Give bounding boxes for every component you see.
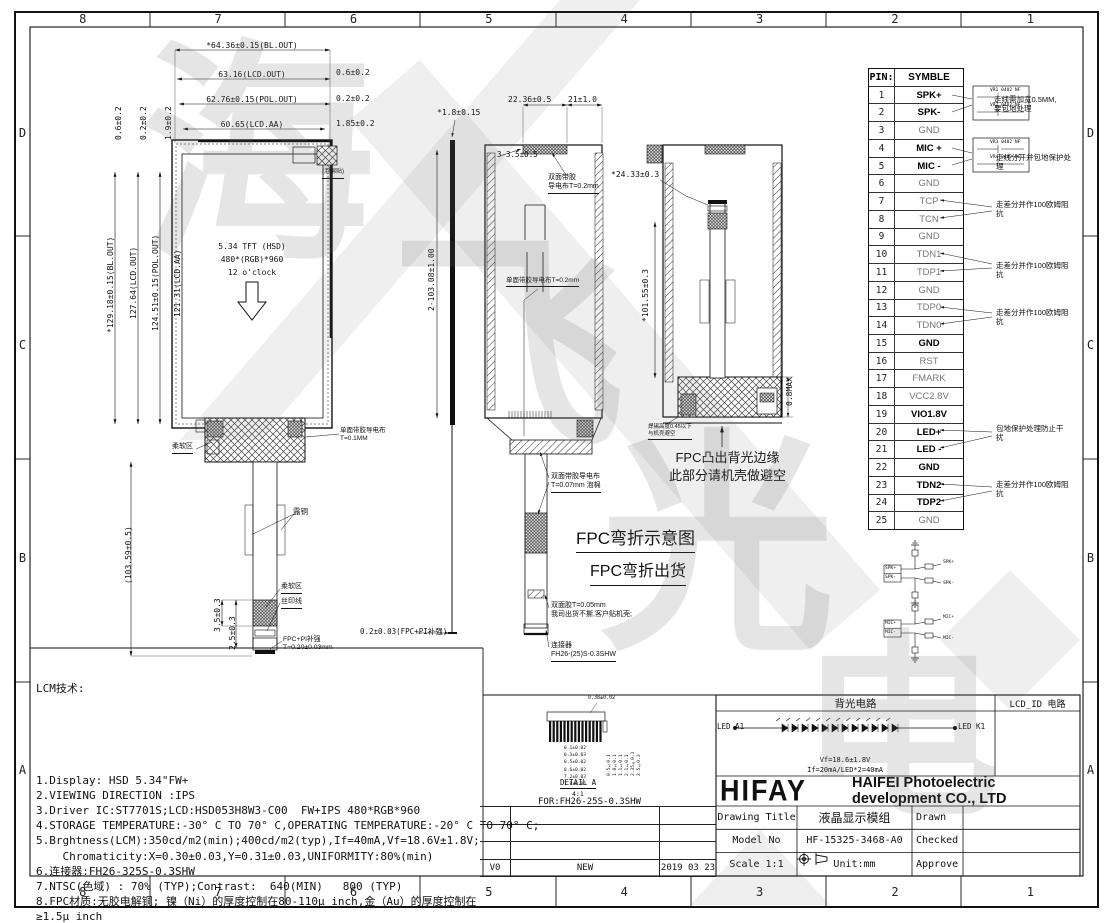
pin-symbol: TDN2 [895,477,963,494]
pin-symbol: GND [895,459,963,476]
pin-row: 19VIO1.8V [869,405,963,423]
vr3-label: VR3 0402 NF [990,140,1020,145]
mic-in2-label: MIC- [885,630,896,635]
hifay-logo: HIFAY [720,774,807,807]
pin-number: 8 [869,211,895,228]
pin-symbol: MIC - [895,158,963,175]
company-name-cell: HAIFEI Photoelectric development CO., LT… [852,776,1080,806]
pin-table-header: PIN: SYMBLE [869,69,963,86]
detail-for-text: FOR:FH26-25S-0.3SHW [538,797,641,808]
pin-symbol: TDN0 [895,317,963,334]
zone-letter: B [15,452,30,664]
dim-offset-v2: 0.2±0.2 [139,106,149,140]
model-no-label: Model No [716,829,797,852]
panel-spec-line3: 12 o'clock [172,268,332,278]
pin-row: 6GND [869,174,963,192]
dim-2-5: 2.5±0.3 [228,616,238,650]
pin-row: 9GND [869,228,963,246]
dim-fpc-length: (103.59±0.5) [124,526,134,584]
pin-symbol: GND [895,335,963,352]
pin-row: 2SPK- [869,103,963,121]
pin-number: 14 [869,317,895,334]
detail-dim: 2.35±0.1 [631,720,636,776]
pin-annotation-7: 走差分并作100欧姆阻 抗 [996,480,1069,499]
model-no-value: HF-15325-3468-A0 [797,829,912,852]
pin-symbol: GND [895,512,963,529]
spk-out1-label: SPK+ [943,560,954,565]
spk-out2-label: SPK- [943,581,954,586]
pin-symbol: GND [895,175,963,192]
dim-pol-height: 124.51±0.15(POL.OUT) [151,235,161,331]
detail-dim: 0.3±0.03 [543,752,607,759]
pin-number: 24 [869,495,895,512]
zone-number: 8 [15,12,150,27]
pin-symbol: RST [895,353,963,370]
dim-v3-max: 0.8MAX [785,377,795,406]
pin-number: 4 [869,140,895,157]
pin-symbol: GND [895,282,963,299]
pin-symbol: TCN [895,211,963,228]
zone-number: 4 [557,885,692,899]
pin-row: 1SPK+ [869,86,963,104]
pin-number: 17 [869,370,895,387]
revision-desc [511,842,660,859]
led-cathode-label: LED K1 [958,722,985,731]
dim-aa-width: 60.65(LCD.AA) [172,120,332,130]
tape1-note: 单面带胶导电布T=0.2mm [506,277,579,287]
detail-dim: 2.1±0.1 [625,720,630,776]
pin-row: 24TDP2 [869,494,963,512]
pin-symbol: LED+ [895,424,963,441]
pin-row: 7TCP [869,192,963,210]
pin-number: 1 [869,87,895,104]
pin-symbol: VIO1.8V [895,406,963,423]
detail-dim: 1.1±0.1 [619,720,624,776]
pin-number: 15 [869,335,895,352]
dim-v3-width: *24.33±0.3 [611,170,659,180]
spk-in2-label: SPK- [885,575,896,580]
flex-zone-label-2: 柔软区 [281,583,302,594]
mic-out1-label: MIC+ [943,615,954,620]
revision-desc: NEW [511,860,660,877]
pin-row: 18VCC2.8V [869,387,963,405]
pin-symbol: TDP0 [895,300,963,317]
pin-row: 22GND [869,458,963,476]
revision-date: 2019 03 23 [660,860,716,877]
zone-number: 1 [963,885,1098,899]
pin-number: 18 [869,388,895,405]
vr4-label: VR4 0402 NF [990,155,1020,160]
adhesive-note: 双面胶T=0.05mm 我司出货不撕,客户贴机壳; [551,602,632,620]
vr2-label: VR2 0402 NF [990,103,1020,108]
note-line: Chromaticity:X=0.30±0.03,Y=0.31±0.03,UNI… [36,849,488,864]
detail-title: DETAIL A [560,778,596,789]
pin-row: 3GND [869,121,963,139]
dim-lcd-width: 63.16(LCD.OUT) [172,70,332,80]
pin-row: 5MIC - [869,157,963,175]
pin-symbol: LED - [895,441,963,458]
pin-annotation-3: 走差分并作100欧姆阻 抗 [996,200,1069,219]
dim-offset-v1: 0.6±0.2 [114,106,124,140]
pin-number: 11 [869,264,895,281]
dim-lcd-height: 127.64(LCD.OUT) [129,247,139,319]
drawing-title-value: 液晶显示模组 [797,806,912,829]
mic-in1-label: MIC+ [885,621,896,626]
dim-pol-width: 62.76±0.15(POL.OUT) [172,95,332,105]
pin-number: 13 [869,300,895,317]
revision-date [660,842,716,859]
pin-row: 8TCN [869,210,963,228]
zone-number: 3 [692,885,827,899]
pin-annotation-4: 走差分并作100欧姆阻 抗 [996,261,1069,280]
zone-letter: D [1083,27,1098,239]
pin-number: 21 [869,441,895,458]
pin-number: 22 [869,459,895,476]
detail-dim: 1.0±0.1 [613,720,618,776]
fpc-bend-title: FPC弯折示意图 [576,528,695,553]
drawing-sheet: 87654321 87654321 DCBA DCBA *64.36±0.15(… [0,0,1113,923]
zone-number: 2 [827,12,962,27]
note-line: 1.Display: HSD 5.34"FW+ [36,773,488,788]
approve-label: Approve [912,852,967,876]
zone-letter: C [1083,239,1098,451]
dim-v3-height: *101.55±0.3 [641,269,651,322]
pin-number: 12 [869,282,895,299]
pin-symbol: SPK+ [895,87,963,104]
solder-note: 焊锡高度0.45以下 与机壳避空 [648,424,692,440]
fpc-clearance-note-2: 此部分请机壳做避空 [655,468,800,484]
pin-number: 2 [869,104,895,121]
pin-row: 17FMARK [869,369,963,387]
pin-symbol: TDP2 [895,495,963,512]
projection-symbol-icon [797,852,831,866]
detail-top-dim: 0.38±0.02 [588,695,615,701]
company-name: HAIFEI Photoelectric development CO., LT… [852,775,1080,807]
zone-number: 4 [557,12,692,27]
detail-dim: 0.5±0.02 [543,759,607,766]
pin-annotation-6: 包地保护处理防止干 扰 [996,424,1064,443]
pin-symbol: GND [895,229,963,246]
pin-symbol: TCP [895,193,963,210]
drawing-title-label: Drawing Title [716,806,797,829]
pin-row: 25GND [869,511,963,529]
zone-letters-left: DCBA [15,27,30,876]
pin-row: 12GND [869,281,963,299]
dim-offset-3: 1.85±0.2 [336,119,375,129]
fpc-ship-title: FPC弯折出货 [590,562,686,586]
revision-row: V0 NEW 2019 03 23 [480,860,716,878]
notes-lines: 1.Display: HSD 5.34"FW+2.VIEWING DIRECTI… [36,727,488,923]
pin-row: 20LED+ [869,423,963,441]
zone-letter: A [1083,664,1098,876]
pin-number: 6 [869,175,895,192]
pin-number: 19 [869,406,895,423]
pin-symbol: TDN1 [895,246,963,263]
dim-v2-tab: 3-3.5±0.5 [497,150,538,159]
zone-letter: D [15,27,30,239]
silkscreen-label: 丝印线 [281,598,302,609]
detail-vertical-dims: 0.5±0.11.0±0.11.1±0.12.1±0.12.35±0.12.5±… [607,720,642,776]
checked-label: Checked [912,829,967,852]
zone-number: 5 [421,12,556,27]
pin-number: 25 [869,512,895,529]
unit-cell: Unit:mm [797,852,912,876]
dim-v2-w1: 22.36±0.5 [508,95,551,105]
revision-date [660,825,716,842]
note-line: ≥1.5μ inch [36,909,488,923]
pin-header: PIN: [869,69,895,86]
detail-dim: 0.5±0.1 [607,720,612,776]
notes-title: LCM技术: [36,681,488,696]
zone-number: 1 [963,12,1098,27]
led-vf-label: Vf=18.6±1.8V [790,756,900,765]
zone-number: 2 [827,885,962,899]
note-line: 3.Driver IC:ST7701S;LCD:HSD053H8W3-C00 F… [36,803,488,818]
pin-number: 16 [869,353,895,370]
note-line: 4.STORAGE TEMPERATURE:-30° C TO 70° C,OP… [36,818,488,833]
note-line: 2.VIEWING DIRECTION :IPS [36,788,488,803]
zone-letter: B [1083,452,1098,664]
pin-annotation-5: 走差分并作100欧姆阻 抗 [996,308,1069,327]
detail-dim: 0.6±0.02 [543,767,607,774]
company-logo: HIFAY [720,776,855,806]
dim-3-5: 3.5±0.3 [213,598,223,632]
drawn-label: Drawn [912,806,967,829]
detail-dim: 2.5±0.3 [637,720,642,776]
pin-number: 9 [869,229,895,246]
pin-number: 3 [869,122,895,139]
scale-label: Scale 1:1 [716,852,797,876]
pin-number: 23 [869,477,895,494]
pin-number: 20 [869,424,895,441]
pin-row: 16RST [869,352,963,370]
zone-letter: A [15,664,30,876]
led-anode-label: LED A1 [717,722,744,731]
foam-label: (泡棉贴) [322,169,344,179]
flex-zone-label-1: 柔软区 [172,443,193,454]
zone-letters-right: DCBA [1083,27,1098,876]
pin-row: 14TDN0 [869,316,963,334]
zone-numbers-top: 87654321 [15,12,1098,27]
detail-dim: 0.1±0.02 [543,745,607,752]
fpc-clearance-note-1: FPC凸出背光边缘 [655,450,800,466]
dim-bl-height: *129.18±0.15(BL.OUT) [106,237,116,333]
note-line: 6.连接器:FH26-325S-0.3SHW [36,864,488,879]
led-if-label: If=20mA/LED*2=40mA [790,766,900,775]
pin-row: 11TDP1 [869,263,963,281]
tape-note-label: 单面带胶导电布 T=0.1MM [340,427,386,443]
pin-symbol: MIC + [895,140,963,157]
zone-number: 6 [286,12,421,27]
zone-number: 3 [692,12,827,27]
pin-symbol: VCC2.8V [895,388,963,405]
zone-number: 7 [150,12,285,27]
note-line: 7.NTSC(色域) : 70% (TYP);Contrast: 640(MIN… [36,879,488,894]
pin-row: 4MIC + [869,139,963,157]
pin-row: 10TDN1 [869,245,963,263]
pin-symbol: FMARK [895,370,963,387]
note-line: 5.Brghtness(LCM):350cd/m2(min);400cd/m2(… [36,833,488,848]
dim-offset-v3: 1.9±0.2 [164,106,174,140]
pin-row: 15GND [869,334,963,352]
pin-symbol: SPK- [895,104,963,121]
revision-row [480,842,716,860]
revision-table: V0 NEW 2019 03 23 [480,806,716,877]
dim-bl-width: *64.36±0.15(BL.OUT) [172,41,332,51]
pin-symbol: TDP1 [895,264,963,281]
vr1-label: VR1 0402 NF [990,88,1020,93]
pin-row: 13TDP0 [869,299,963,317]
lcm-notes: LCM技术: 1.Display: HSD 5.34"FW+2.VIEWING … [36,651,488,923]
dim-side-length: 2-103.08±1.00 [427,248,437,311]
backlight-header: 背光电路 [716,695,995,711]
foam-note: 双面带胶导电布 T=0.07mm 泡棉 [551,473,601,493]
revision-date [660,807,716,824]
tape2-note: 双面带胶 导电布T=0.2mm [548,174,599,194]
copper-label: 露铜 [293,507,308,516]
lcdid-header: LCD_ID 电路 [995,695,1080,711]
zone-letter: C [15,239,30,451]
spk-in1-label: SPK+ [885,566,896,571]
pin-table: PIN: SYMBLE 1SPK+2SPK-3GND4MIC +5MIC -6G… [868,68,964,530]
pin-number: 7 [869,193,895,210]
dim-offset-1: 0.6±0.2 [336,68,370,78]
dim-fpc-thickness: 0.2±0.03(FPC+PI补强) [360,627,447,636]
dim-thickness: *1.8±0.15 [437,108,480,118]
mic-out2-label: MIC- [943,636,954,641]
pin-row: 21LED - [869,440,963,458]
pin-number: 10 [869,246,895,263]
symbol-header: SYMBLE [895,69,963,86]
connector-label: 连接器 FH26-(25)S-0.3SHW [551,642,616,662]
pin-row: 23TDN2 [869,476,963,494]
panel-spec-line1: 5.34 TFT (HSD) [172,242,332,252]
pin-symbol: GND [895,122,963,139]
unit-label: Unit:mm [833,859,875,870]
panel-spec-line2: 480*(RGB)*960 [172,255,332,265]
dim-v2-w2: 21±1.0 [568,95,597,105]
pin-number: 5 [869,158,895,175]
dim-offset-2: 0.2±0.2 [336,94,370,104]
note-line: 8.FPC材质:无胶电解铜; 镍（Ni）的厚度控制在80-110μ inch,金… [36,894,488,909]
